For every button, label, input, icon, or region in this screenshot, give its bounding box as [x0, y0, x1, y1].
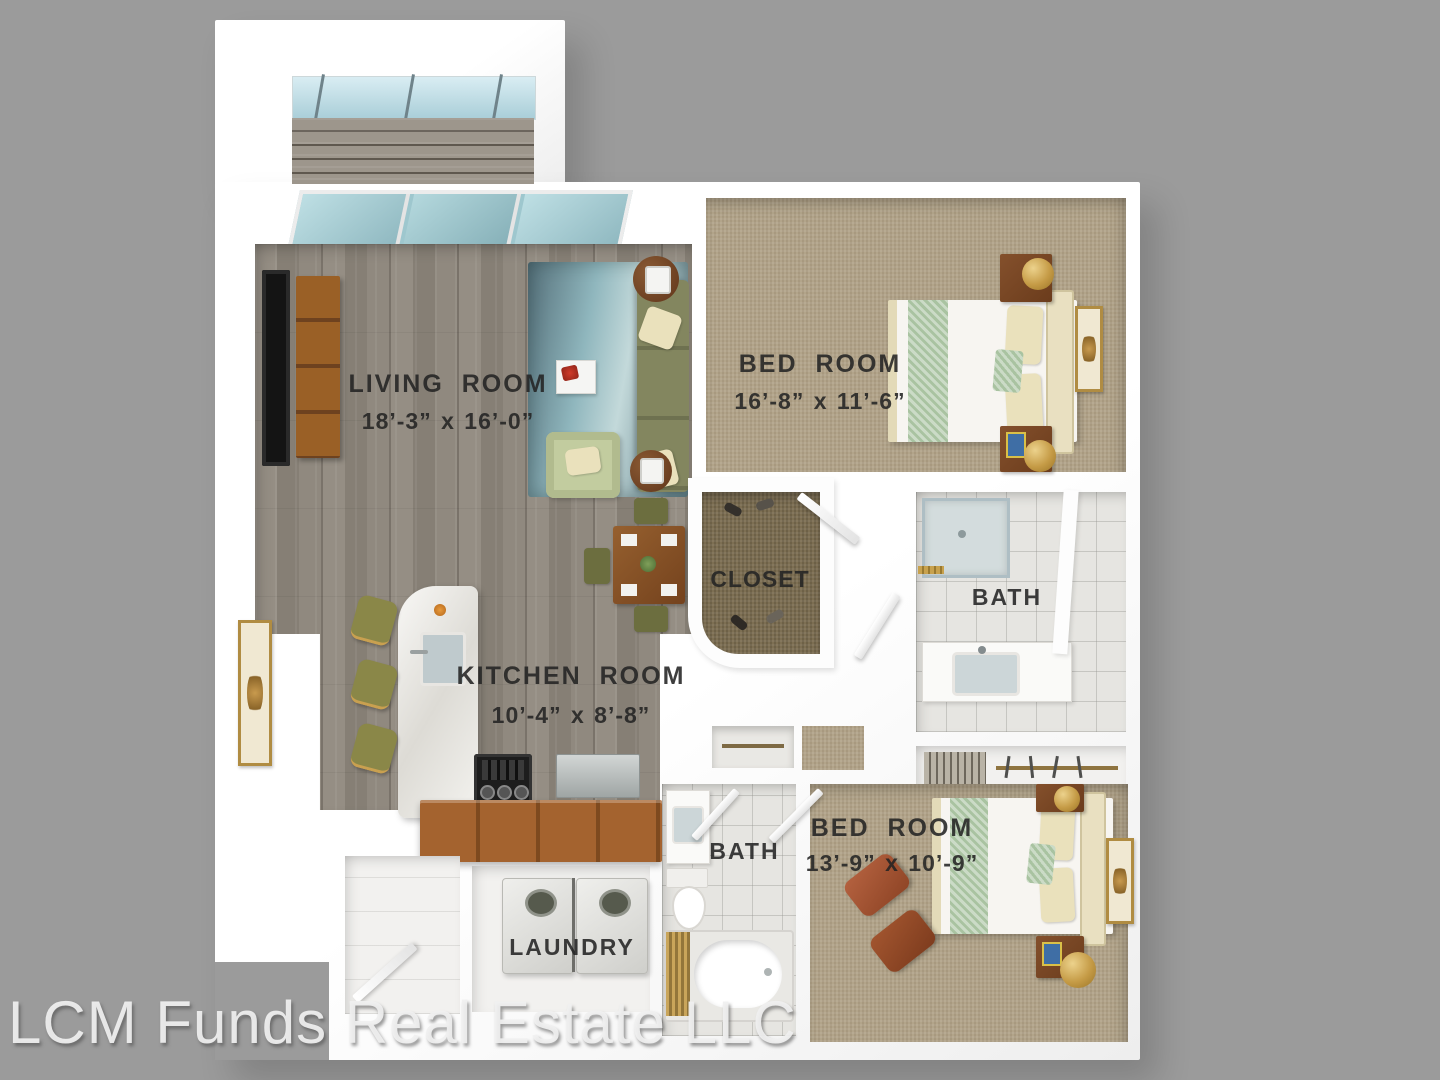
- patio-glass-door: [287, 190, 633, 252]
- table-lamp: [640, 458, 664, 484]
- wall-art: [1075, 306, 1103, 392]
- placemat: [621, 584, 637, 596]
- bed-cushion: [1026, 843, 1056, 885]
- gold-lamp: [1060, 952, 1096, 988]
- placemat: [661, 534, 677, 546]
- kitchen-dims: 10’-4” x 8’-8”: [451, 702, 691, 729]
- kitchen-cabinets: [420, 800, 662, 862]
- door-glass-pane: [292, 194, 410, 248]
- gold-lamp: [1024, 440, 1056, 472]
- door-glass-pane: [514, 194, 628, 248]
- closet-label: CLOSET: [690, 566, 830, 593]
- art-print: [247, 671, 264, 716]
- fruit-bowl: [434, 604, 446, 616]
- bedroom1-label: BED ROOM: [700, 350, 940, 379]
- niche-rod: [722, 744, 784, 748]
- tv-screen: [262, 270, 290, 466]
- towel-rack: [918, 566, 944, 574]
- tub-drain: [764, 968, 772, 976]
- nightstand-books: [1042, 942, 1062, 966]
- wall-art: [238, 620, 272, 766]
- bedroom2-label: BED ROOM: [772, 814, 1012, 843]
- closet-shelf-slats: [924, 752, 986, 786]
- dining-chair: [634, 498, 668, 524]
- dryer-lid: [599, 889, 631, 917]
- living-room-dims: 18’-3” x 16’-0”: [328, 408, 568, 435]
- island-faucet: [410, 650, 428, 654]
- stove-knob: [514, 785, 529, 800]
- door-glass-pane: [403, 194, 521, 248]
- nightstand-books: [1006, 432, 1026, 458]
- gold-lamp: [1022, 258, 1054, 290]
- shower-drain: [958, 530, 966, 538]
- stove-grate: [482, 760, 524, 780]
- armchair-pillow: [564, 446, 601, 476]
- bath1-label: BATH: [942, 584, 1072, 611]
- faucet: [978, 646, 986, 654]
- stove-knob: [497, 785, 512, 800]
- wall-art: [1106, 838, 1134, 924]
- table-lamp: [645, 266, 671, 294]
- laundry-label: LAUNDRY: [488, 934, 656, 961]
- vanity-sink: [952, 652, 1020, 696]
- placemat: [661, 584, 677, 596]
- centerpiece-plant: [640, 556, 656, 572]
- kitchen-label: KITCHEN ROOM: [451, 662, 691, 691]
- dining-chair: [634, 606, 668, 632]
- art-print: [1113, 865, 1126, 897]
- hall-carpet-threshold: [802, 726, 864, 770]
- bed-headboard: [1080, 792, 1106, 946]
- floor-plan-render: LIVING ROOM 18’-3” x 16’-0” BED ROOM 16’…: [0, 0, 1440, 1080]
- bed-cushion: [992, 349, 1024, 393]
- steel-counter: [556, 754, 640, 798]
- bedroom1-dims: 16’-8” x 11’-6”: [700, 388, 940, 415]
- gold-lamp: [1054, 786, 1080, 812]
- balcony-deck: [292, 118, 534, 184]
- placemat: [621, 534, 637, 546]
- living-room-label: LIVING ROOM: [328, 370, 568, 399]
- toilet-tank: [666, 868, 708, 888]
- watermark-text: LCM Funds Real Estate LLC: [8, 988, 797, 1057]
- art-print: [1082, 333, 1095, 365]
- stove-knob: [480, 785, 495, 800]
- dining-chair: [584, 548, 610, 584]
- bedroom2-dims: 13’-9” x 10’-9”: [772, 850, 1012, 877]
- washer-lid: [525, 889, 557, 917]
